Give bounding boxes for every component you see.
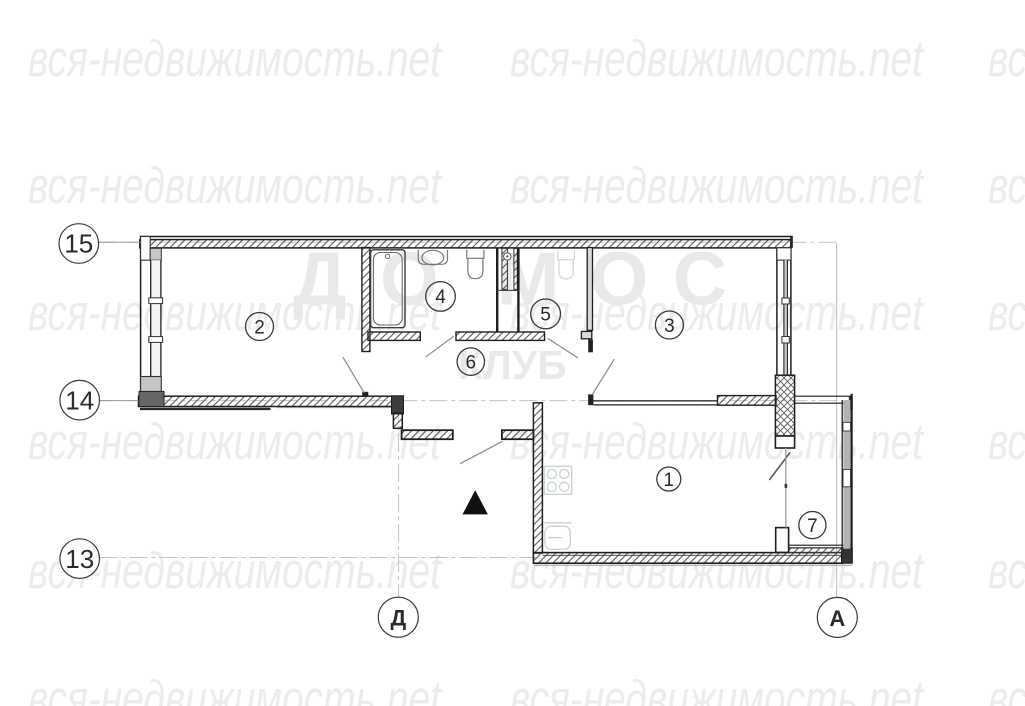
svg-text:О: О — [590, 237, 648, 321]
svg-text:Д: Д — [390, 606, 406, 631]
svg-text:вся-недвижимость.net: вся-недвижимость.net — [988, 413, 1025, 470]
svg-text:вся-недвижимость.net: вся-недвижимость.net — [988, 284, 1025, 341]
svg-text:3: 3 — [664, 316, 675, 337]
svg-text:1: 1 — [664, 470, 675, 491]
svg-text:4: 4 — [435, 287, 446, 308]
svg-text:вся-недвижимость.net: вся-недвижимость.net — [988, 30, 1025, 87]
svg-text:А: А — [829, 606, 845, 631]
svg-text:7: 7 — [807, 516, 818, 537]
svg-text:14: 14 — [65, 385, 94, 415]
svg-text:Д: Д — [293, 237, 346, 321]
svg-text:С: С — [673, 237, 727, 321]
svg-text:вся-недвижимость.net: вся-недвижимость.net — [28, 413, 442, 470]
svg-text:6: 6 — [466, 352, 477, 373]
svg-text:вся-недвижимость.net: вся-недвижимость.net — [988, 542, 1025, 599]
svg-text:13: 13 — [65, 544, 94, 574]
svg-text:5: 5 — [540, 305, 551, 326]
svg-text:вся-недвижимость.net: вся-недвижимость.net — [988, 157, 1025, 214]
svg-text:вся-недвижимость.net: вся-недвижимость.net — [510, 670, 924, 706]
svg-text:вся-недвижимость.net: вся-недвижимость.net — [510, 542, 924, 599]
svg-text:вся-недвижимость.net: вся-недвижимость.net — [510, 157, 924, 214]
svg-text:вся-недвижимость.net: вся-недвижимость.net — [28, 30, 442, 87]
svg-text:вся-недвижимость.net: вся-недвижимость.net — [510, 30, 924, 87]
svg-text:вся-недвижимость.net: вся-недвижимость.net — [28, 157, 442, 214]
svg-text:2: 2 — [254, 317, 265, 338]
svg-text:вся-недвижимость.net: вся-недвижимость.net — [28, 670, 442, 706]
svg-text:вся-недвижимость.net: вся-недвижимость.net — [988, 670, 1025, 706]
svg-text:вся-недвижимость.net: вся-недвижимость.net — [510, 413, 924, 470]
svg-text:15: 15 — [64, 229, 93, 259]
